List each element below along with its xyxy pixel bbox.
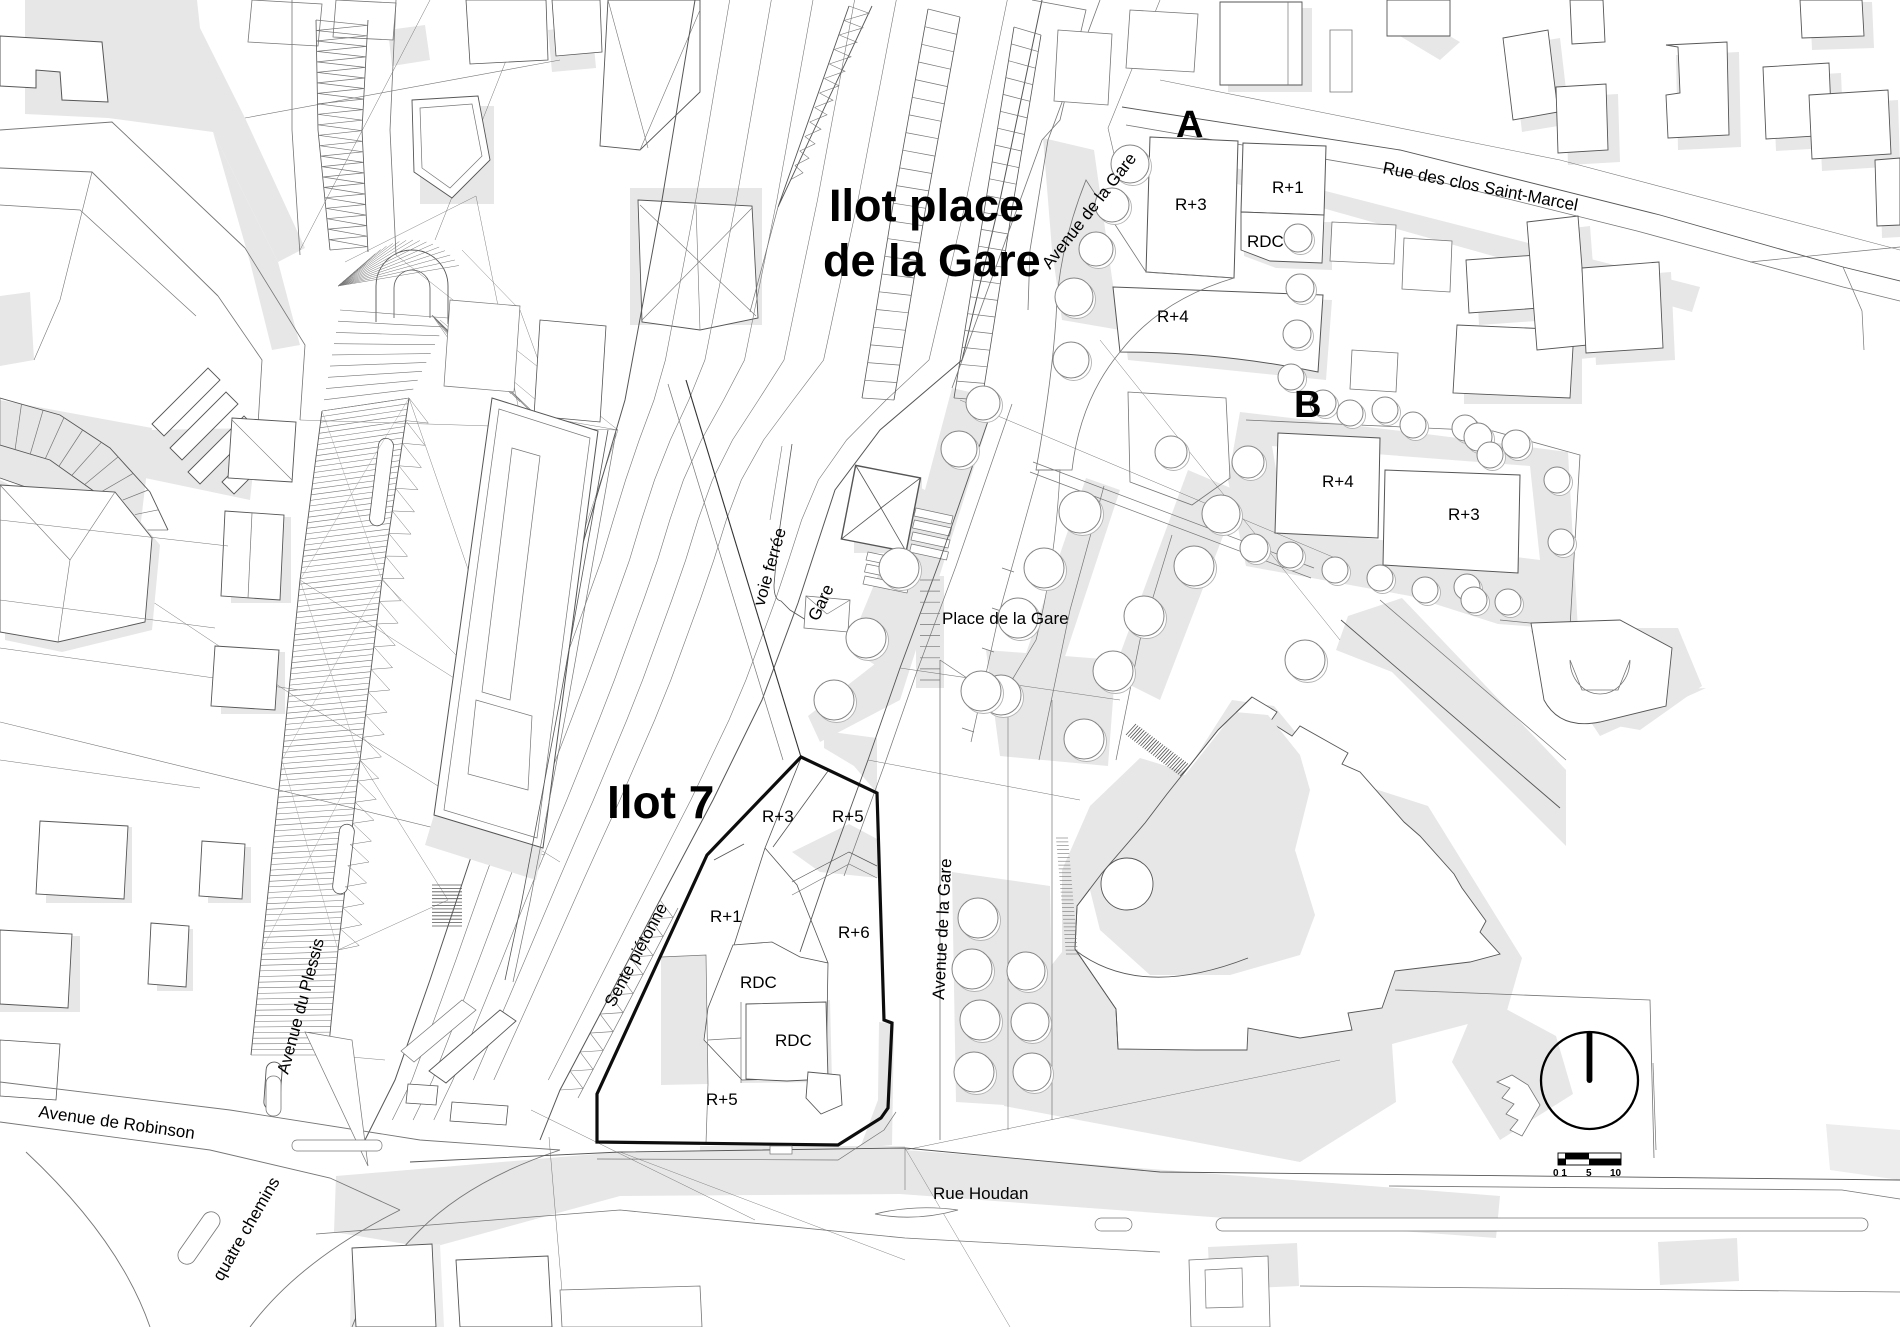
svg-text:5: 5 (1586, 1168, 1592, 1179)
svg-text:de la Gare: de la Gare (823, 235, 1041, 286)
svg-text:R+1: R+1 (1272, 178, 1304, 197)
svg-text:B: B (1294, 384, 1321, 426)
svg-text:R+3: R+3 (762, 807, 794, 826)
svg-text:Rue Houdan: Rue Houdan (933, 1184, 1028, 1203)
svg-text:10: 10 (1610, 1168, 1622, 1179)
svg-text:Place de la Gare: Place de la Gare (942, 609, 1069, 628)
svg-text:R+1: R+1 (710, 907, 742, 926)
svg-text:RDC: RDC (1247, 232, 1284, 251)
svg-text:R+5: R+5 (832, 807, 864, 826)
svg-text:R+5: R+5 (706, 1090, 738, 1109)
svg-text:RDC: RDC (775, 1031, 812, 1050)
svg-text:RDC: RDC (740, 973, 777, 992)
svg-text:Ilot place: Ilot place (829, 180, 1024, 231)
svg-text:A: A (1176, 104, 1203, 146)
svg-text:R+6: R+6 (838, 923, 870, 942)
svg-text:R+4: R+4 (1322, 472, 1354, 491)
svg-text:R+4: R+4 (1157, 307, 1189, 326)
svg-text:Ilot 7: Ilot 7 (607, 776, 714, 828)
svg-text:R+3: R+3 (1448, 505, 1480, 524)
svg-text:R+3: R+3 (1175, 195, 1207, 214)
svg-text:0 1: 0 1 (1553, 1168, 1567, 1179)
